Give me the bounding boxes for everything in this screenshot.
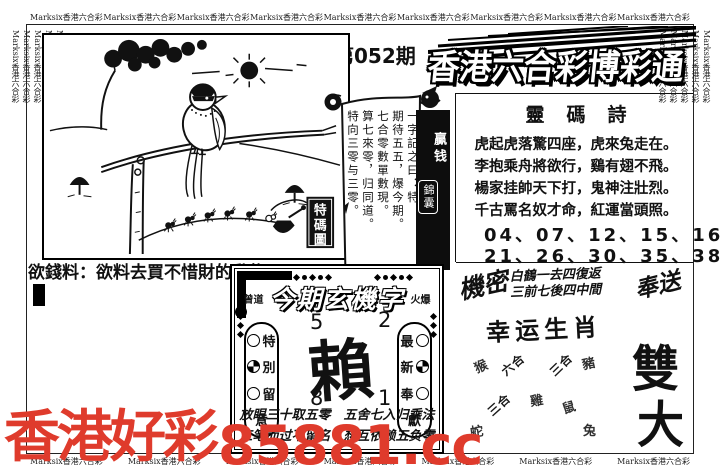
lottery-sheet-page: Marksix香港六合彩Marksix香港六合彩Marksix香港六合彩Mark… bbox=[0, 0, 720, 471]
poem-title: 靈碼詩 bbox=[458, 100, 694, 127]
masthead-title: 香港六合彩博彩通 bbox=[425, 40, 698, 90]
mystery-character: 賴 bbox=[305, 316, 378, 416]
circle-mark-icon bbox=[416, 387, 429, 400]
zodiac-animal-stamp: 雞 bbox=[529, 389, 545, 410]
banner-line1: 贏钱 bbox=[429, 132, 448, 166]
marquee-item: Marksix香港六合彩 bbox=[30, 12, 103, 23]
marquee-item: Marksix香港六合彩 bbox=[544, 12, 617, 23]
edge-ornament-icon bbox=[431, 314, 436, 337]
poem-line: 楊家挂帥天下打，鬼神注壯烈。 bbox=[458, 178, 694, 200]
circle-mark-icon bbox=[247, 334, 260, 347]
corner-number: 2 bbox=[378, 308, 391, 332]
sun-icon bbox=[192, 54, 306, 88]
watermark-url: 85881.cc bbox=[218, 414, 482, 471]
poem-line: 李抱乘舟將欲行，鷄有翅不飛。 bbox=[458, 156, 694, 178]
marquee-item: Marksix香港六合彩 bbox=[617, 12, 690, 23]
marquee-item: Marksix香港六合彩 bbox=[617, 456, 690, 467]
watermark-brand: 香港好彩 bbox=[4, 392, 216, 471]
marquee-item: Marksix香港六合彩 bbox=[324, 12, 397, 23]
marquee-item: Marksix香港六合彩 bbox=[177, 12, 250, 23]
mystery-box-header: 曾道 今期玄機字 火爆 bbox=[232, 280, 442, 316]
mascot-icon bbox=[417, 84, 443, 110]
circle-mark-icon bbox=[247, 387, 260, 400]
poem-line: 虎起虎落驚四座，虎來兔走在。 bbox=[458, 134, 694, 156]
marquee-item: Marksix香港六合彩 bbox=[519, 456, 592, 467]
secret-line: 三前七後四中間 bbox=[510, 282, 602, 301]
poem-body: 虎起虎落驚四座，虎來兔走在。 李抱乘舟將欲行，鷄有翅不飛。 楊家挂帥天下打，鬼神… bbox=[458, 134, 694, 222]
masthead-art: 香港六合彩博彩通 bbox=[428, 26, 696, 88]
riddle-text: 一字記之曰：特 期待五五，爆今期。 七合零數單數現。 算七來零，归同道。 特向三… bbox=[344, 110, 420, 280]
bird-cartoon-illustration: 特 碼 圖 bbox=[44, 35, 344, 254]
marquee-item: Marksix香港六合彩 bbox=[103, 12, 176, 23]
money-hint-label: 欲錢料： bbox=[28, 263, 96, 283]
header-tag-right: 火爆 bbox=[411, 291, 431, 306]
marquee-item: Marksix香港六合彩 bbox=[250, 12, 323, 23]
special-number-chart-panel: 特 碼 圖 bbox=[42, 33, 350, 260]
divider bbox=[455, 93, 456, 262]
marquee-item: Marksix香港六合彩 bbox=[397, 12, 470, 23]
marquee-item: Marksix香港六合彩 bbox=[470, 12, 543, 23]
banner-line2: 錦囊 bbox=[418, 180, 438, 214]
marquee-item: Marksix香港六合彩 bbox=[10, 30, 21, 441]
header-tag-left: 曾道 bbox=[243, 291, 263, 306]
big-hint-char-2: 大 bbox=[637, 384, 684, 456]
circle-mark-icon bbox=[416, 334, 429, 347]
edge-ornament-icon bbox=[238, 314, 243, 337]
lucky-zodiac-title: 幸运生肖 bbox=[485, 307, 603, 348]
win-money-banner: 贏钱 錦囊 bbox=[416, 110, 450, 270]
zodiac-animal-stamp: 兔 bbox=[583, 420, 596, 439]
bird-icon bbox=[178, 84, 229, 198]
divider bbox=[456, 93, 693, 94]
poem-line: 千古罵名奴才命，紅運當頭照。 bbox=[458, 200, 694, 222]
pinwheel-mark-icon bbox=[247, 360, 260, 373]
border-marquee-top: Marksix香港六合彩Marksix香港六合彩Marksix香港六合彩Mark… bbox=[30, 12, 690, 23]
secret-verse: 白鶴一去四復返 三前七後四中間 bbox=[509, 266, 601, 301]
ink-block bbox=[33, 284, 45, 306]
ants-on-branch bbox=[139, 207, 287, 241]
pinwheel-mark-icon bbox=[416, 360, 429, 373]
